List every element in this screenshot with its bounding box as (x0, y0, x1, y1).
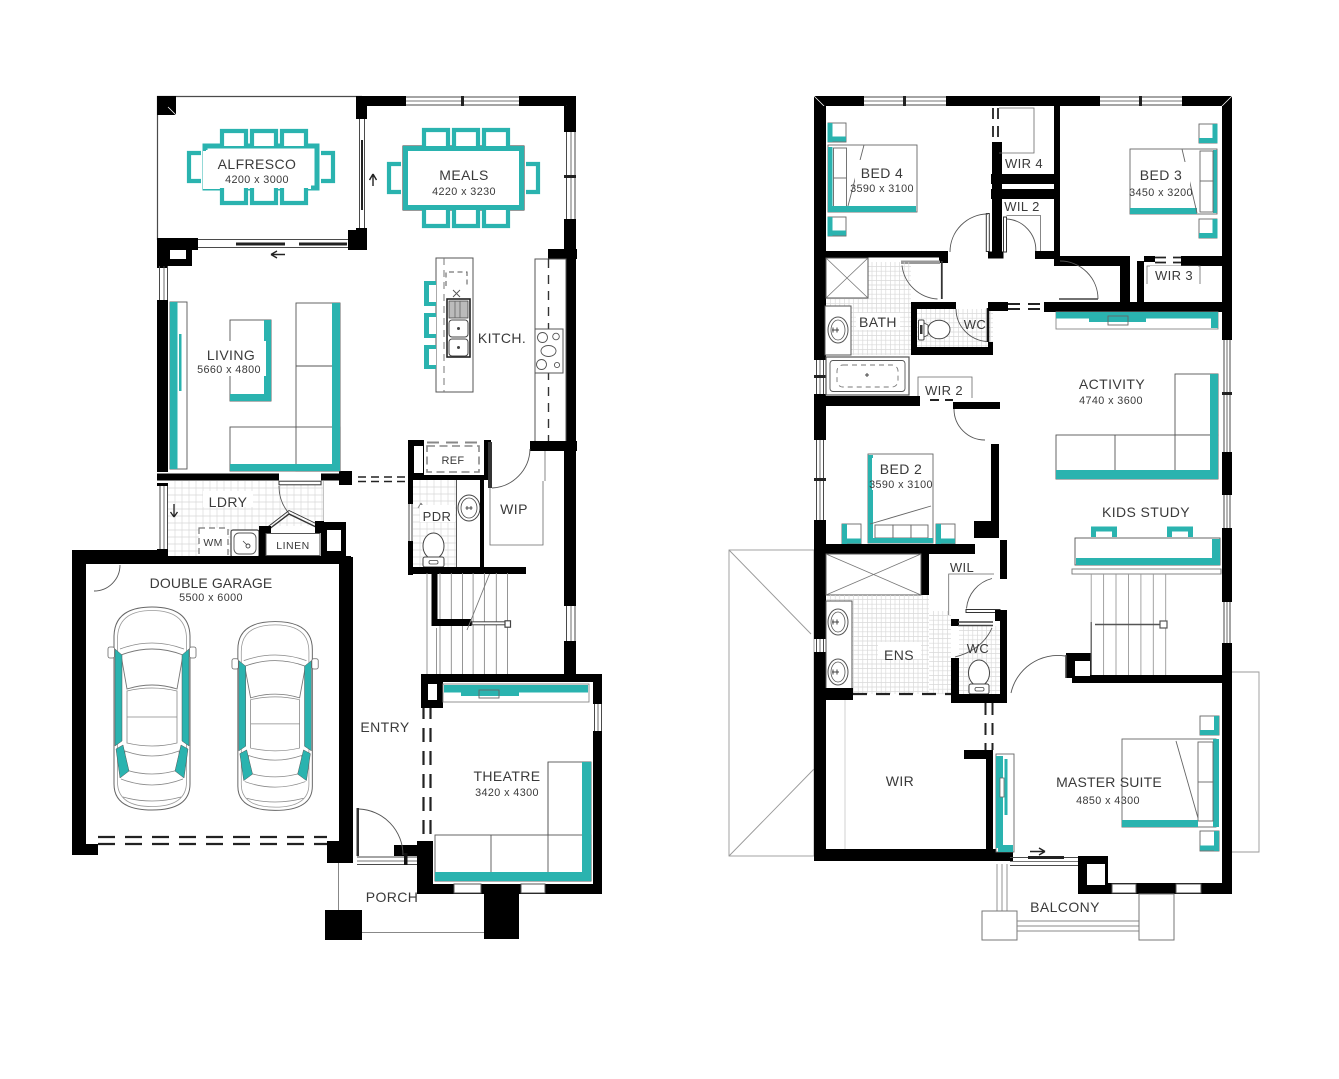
svg-text:BED 4: BED 4 (861, 165, 903, 181)
svg-text:WIP: WIP (500, 501, 528, 517)
svg-text:ENTRY: ENTRY (360, 719, 409, 735)
svg-text:4200 x 3000: 4200 x 3000 (225, 174, 289, 186)
svg-text:ALFRESCO: ALFRESCO (218, 156, 297, 172)
svg-text:WIR 4: WIR 4 (1005, 156, 1043, 171)
svg-text:WIR 2: WIR 2 (925, 383, 963, 398)
svg-text:PDR: PDR (423, 509, 452, 524)
svg-text:BED 3: BED 3 (1140, 167, 1182, 183)
svg-text:4220 x 3230: 4220 x 3230 (432, 186, 496, 198)
svg-text:MASTER SUITE: MASTER SUITE (1056, 774, 1162, 790)
svg-text:REF: REF (442, 455, 465, 467)
svg-text:3420 x 4300: 3420 x 4300 (475, 787, 539, 799)
svg-text:WIL: WIL (950, 560, 974, 575)
svg-text:WM: WM (203, 537, 222, 549)
svg-text:LDRY: LDRY (209, 494, 248, 510)
svg-text:ACTIVITY: ACTIVITY (1079, 376, 1145, 392)
svg-text:LINEN: LINEN (276, 540, 309, 552)
svg-text:4850 x 4300: 4850 x 4300 (1076, 795, 1140, 807)
svg-text:PORCH: PORCH (366, 889, 419, 905)
svg-text:3590 x 3100: 3590 x 3100 (850, 183, 914, 195)
svg-text:THEATRE: THEATRE (473, 768, 540, 784)
svg-text:DOUBLE GARAGE: DOUBLE GARAGE (150, 575, 273, 591)
svg-text:WIL 2: WIL 2 (1004, 199, 1039, 214)
svg-text:BED 2: BED 2 (880, 461, 922, 477)
svg-text:BATH: BATH (859, 314, 897, 330)
svg-text:WC: WC (964, 317, 986, 332)
svg-text:BALCONY: BALCONY (1030, 899, 1100, 915)
svg-text:WIR: WIR (886, 773, 914, 789)
svg-text:3590 x 3100: 3590 x 3100 (869, 479, 933, 491)
svg-text:MEALS: MEALS (439, 167, 488, 183)
svg-text:KIDS STUDY: KIDS STUDY (1102, 504, 1190, 520)
svg-text:5660 x 4800: 5660 x 4800 (197, 364, 261, 376)
svg-text:WIR 3: WIR 3 (1155, 268, 1193, 283)
svg-text:5500 x 6000: 5500 x 6000 (179, 592, 243, 604)
svg-text:4740 x 3600: 4740 x 3600 (1079, 395, 1143, 407)
svg-text:KITCH.: KITCH. (478, 330, 526, 346)
svg-text:ENS: ENS (884, 647, 914, 663)
svg-text:LIVING: LIVING (207, 347, 255, 363)
svg-text:3450 x 3200: 3450 x 3200 (1129, 187, 1193, 199)
svg-text:WC: WC (967, 641, 989, 656)
